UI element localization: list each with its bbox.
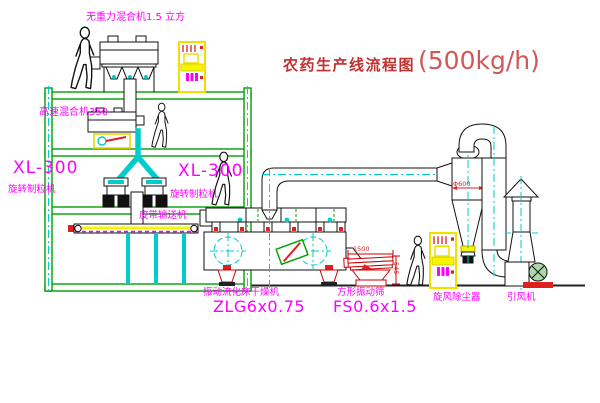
induced-draft-fan [505, 262, 553, 288]
belt-conveyor [68, 224, 198, 284]
person-figure [407, 236, 425, 285]
label-gravity-free-mixer: 无重力混合机1.5 立方 [86, 13, 185, 23]
label-dryer-model: ZLG6x0.75 [213, 299, 305, 315]
dimension-sieve-length: 1500 [353, 246, 370, 253]
title-text: 农药生产线流程图 [283, 54, 415, 75]
label-granulator-left-name: 旋转制粒机 [8, 185, 56, 195]
label-granulator-center-model: XL-300 [178, 163, 243, 180]
gravity-free-mixer [86, 36, 158, 112]
title-capacity: (500kg/h) [418, 46, 540, 75]
person-figure [152, 103, 168, 147]
dimension-cyclone-diameter: Φ600 [453, 181, 471, 188]
label-high-speed-mixer: 高速混合机350 [39, 108, 108, 118]
label-granulator-left-model: XL-300 [13, 160, 78, 177]
control-cabinet-right [430, 233, 456, 288]
label-granulator-center-name: 旋转制粒机 [170, 190, 218, 200]
fluid-bed-dryer [200, 208, 362, 286]
label-belt-conveyor: 皮带输送机 [139, 211, 187, 221]
label-sieve-model: FS0.6x1.5 [333, 299, 417, 315]
label-cyclone: 旋风除尘器 [433, 293, 481, 303]
label-fan: 引风机 [507, 293, 536, 303]
page-title: 农药生产线流程图 (500kg/h) [283, 46, 540, 75]
process-flow-diagram: 农药生产线流程图 (500kg/h) 无重力混合机1.5 立方 高速混合机350… [0, 0, 600, 403]
person-figure [71, 27, 94, 88]
dimension-sieve-height: 545 [393, 262, 400, 274]
control-cabinet-top [179, 42, 205, 92]
